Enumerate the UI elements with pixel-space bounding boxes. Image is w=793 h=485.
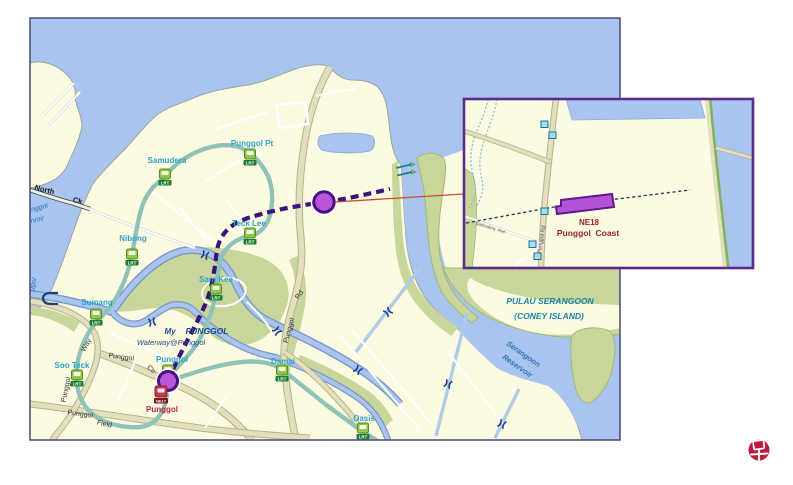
svg-text:PUNGGOL: PUNGGOL	[186, 326, 229, 336]
svg-text:Soo Teck: Soo Teck	[55, 361, 91, 370]
svg-text:Punggol: Punggol	[146, 405, 178, 414]
svg-text:Teck Lee: Teck Lee	[232, 219, 266, 228]
svg-text:Sam Kee: Sam Kee	[199, 275, 233, 284]
svg-text:Punggol: Punggol	[156, 355, 188, 364]
svg-text:NE17: NE17	[156, 399, 167, 404]
svg-text:PULAU SERANGOON: PULAU SERANGOON	[506, 296, 594, 306]
svg-text:Punggol Coast: Punggol Coast	[557, 228, 620, 238]
svg-text:Oasis: Oasis	[353, 414, 375, 423]
svg-text:Waterway@Punggol: Waterway@Punggol	[137, 338, 206, 347]
svg-text:Punggol Pt: Punggol Pt	[231, 139, 274, 148]
svg-text:Sumang: Sumang	[81, 298, 113, 307]
svg-text:Damai: Damai	[271, 357, 295, 366]
svg-text:Samudera: Samudera	[148, 156, 187, 165]
svg-text:Nibong: Nibong	[119, 234, 147, 243]
svg-text:NE18: NE18	[579, 218, 600, 227]
svg-text:My: My	[164, 327, 176, 336]
svg-text:(CONEY ISLAND): (CONEY ISLAND)	[514, 311, 584, 321]
